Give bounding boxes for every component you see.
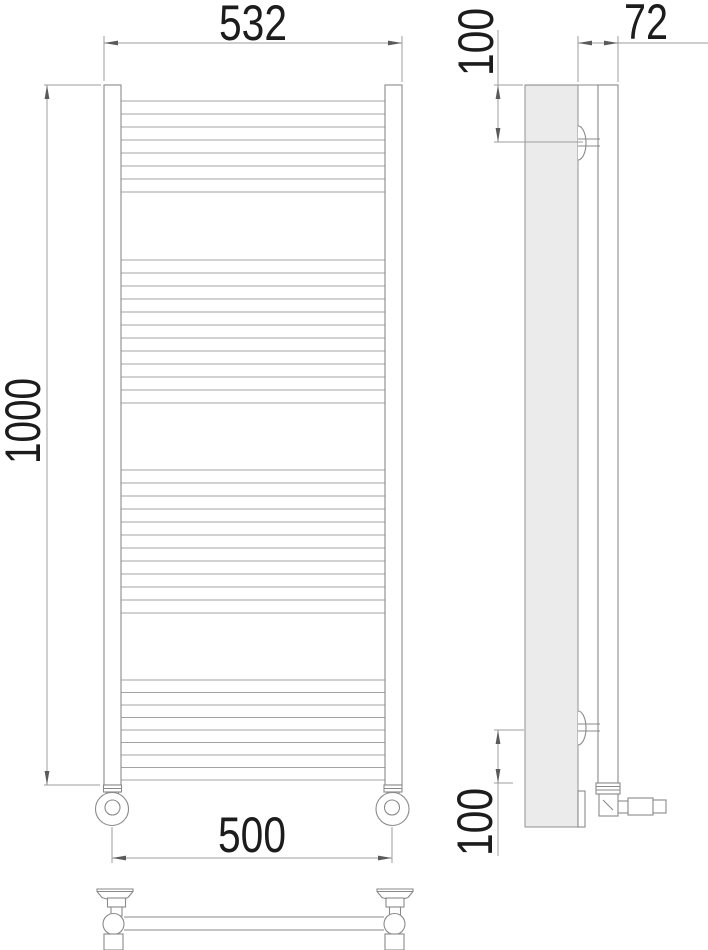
right-bottom-valve [384, 914, 405, 935]
dim-overall-height: 1000 [0, 85, 101, 785]
left-valve [96, 785, 129, 826]
dim-bottom-bracket: 100 [447, 730, 524, 856]
dim-label-100-bottom: 100 [447, 788, 503, 856]
side-panel [525, 85, 578, 827]
right-tube [385, 85, 402, 785]
drawing-canvas: 532 1000 500 72 100 [0, 0, 708, 950]
dim-overall-width: 532 [104, 0, 402, 82]
arrow-bottom [45, 771, 50, 785]
bottom-left-assembly [97, 889, 133, 950]
side-angle-valve [578, 783, 666, 827]
right-valve [376, 785, 409, 826]
left-valve-stem [105, 800, 120, 815]
dim-label-72: 72 [624, 0, 668, 50]
right-valve-stem [385, 800, 400, 815]
dim-label-500: 500 [218, 807, 286, 863]
arrow-bottom [496, 769, 501, 783]
arrow-top [45, 85, 50, 99]
arrow-right [388, 41, 402, 46]
arrow-right [378, 856, 392, 861]
arrow-right [604, 41, 618, 46]
arrow-left [112, 856, 126, 861]
arrow-top [496, 730, 501, 744]
dim-connection-spacing: 500 [112, 807, 392, 863]
towel-radiator-drawing: 532 1000 500 72 100 [0, 0, 708, 950]
dim-label-100-top: 100 [448, 8, 504, 76]
side-wall-tube [598, 85, 618, 783]
dim-label-1000: 1000 [0, 378, 51, 464]
bottom-view [97, 889, 413, 950]
left-tube [104, 85, 121, 785]
arrow-bottom [496, 128, 501, 142]
side-view [525, 85, 666, 827]
upper-bracket [578, 126, 600, 160]
arrow-left [578, 41, 592, 46]
lower-bracket [578, 711, 600, 745]
dim-label-532: 532 [219, 0, 287, 51]
arrow-top [496, 85, 501, 99]
rung-lines [121, 101, 385, 780]
bottom-right-assembly [377, 889, 413, 950]
left-bottom-valve [103, 914, 124, 935]
dim-depth: 72 [578, 0, 708, 82]
arrow-left [104, 41, 118, 46]
front-view [96, 85, 410, 826]
